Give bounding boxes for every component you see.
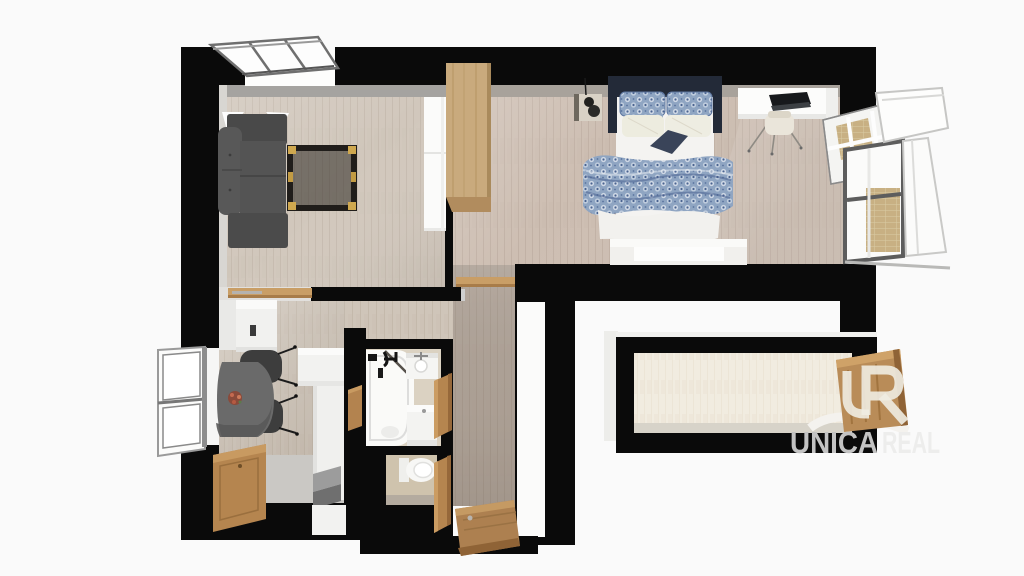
svg-text:REAL: REAL xyxy=(882,425,940,460)
svg-text:UNICA: UNICA xyxy=(790,425,878,460)
